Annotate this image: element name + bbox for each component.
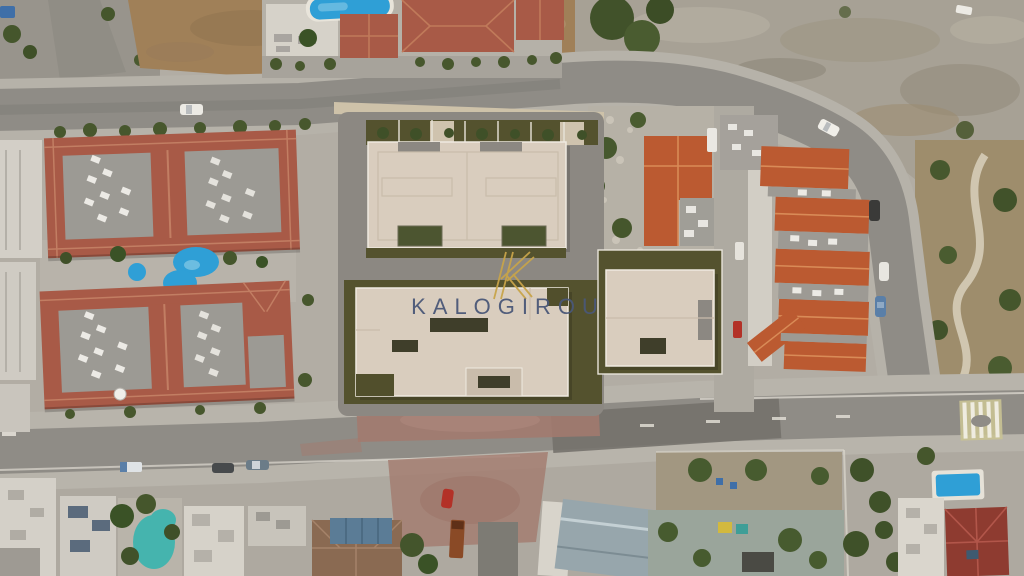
brown-roof-house (312, 518, 402, 576)
left-apartment-complex (0, 118, 314, 432)
aerial-drone-photo: KALOGIROU (0, 0, 1024, 576)
pickup-white-main-road (120, 462, 142, 472)
car-red-parked-lane (733, 321, 742, 338)
apartment-north (44, 130, 300, 262)
car-white-upper-road (180, 104, 203, 115)
van-white-lane (735, 242, 744, 260)
car-white-parked (879, 262, 889, 281)
kalogirou-brand-text: KALOGIROU (411, 294, 605, 319)
old-house (644, 136, 716, 246)
truck-blue-top-left (0, 6, 15, 18)
car-blue-main-road (246, 460, 269, 470)
car-dark-main-road (212, 463, 234, 473)
development-building-north (368, 142, 570, 252)
van-white-top (707, 128, 717, 152)
car-blue-vertical-road (875, 296, 886, 317)
red-roof-house-south (945, 507, 1009, 576)
pool-house (110, 494, 182, 576)
truck-orange (449, 520, 465, 559)
apartment-south (40, 281, 295, 413)
pool-south-east (931, 469, 984, 501)
car-dark-vertical-road (869, 200, 880, 221)
crosswalk (959, 399, 1002, 440)
aerial-photo-svg: KALOGIROU (0, 0, 1024, 576)
development-building-east (598, 250, 722, 374)
playground (648, 450, 848, 576)
